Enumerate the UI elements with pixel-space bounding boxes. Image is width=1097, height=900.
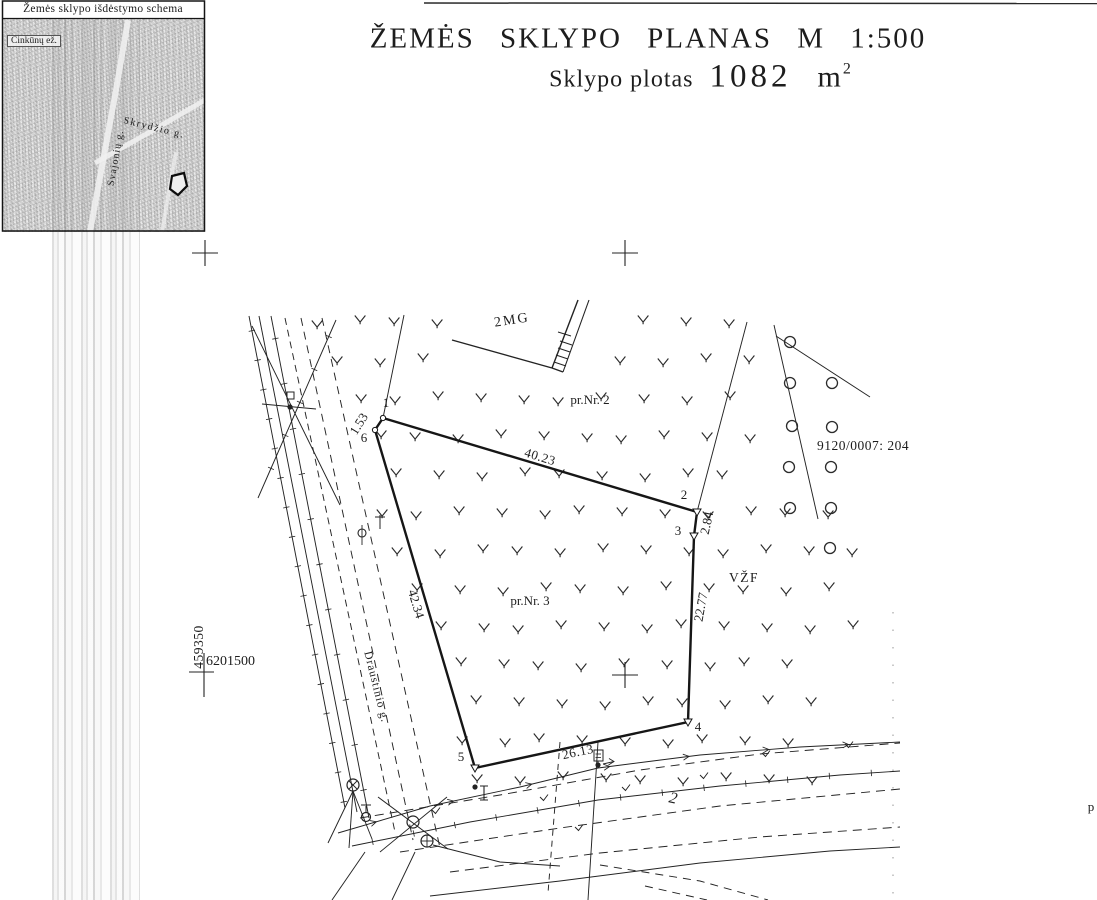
vzf-area-label: VŽF	[729, 570, 759, 586]
vertex-label-4: 4	[695, 719, 702, 735]
meadow-symbols	[312, 316, 859, 787]
vertex-label-1: 1	[383, 395, 390, 411]
grid-coordinate-vertical: 459350	[191, 625, 207, 669]
parcel-north-label: pr.Nr. 2	[570, 392, 609, 408]
grid-coordinate-horizontal: 6201500	[206, 654, 255, 670]
sheet-top-border	[424, 3, 1097, 4]
area-value: 1082	[710, 59, 792, 96]
area-unit: m	[818, 61, 841, 95]
scanned-land-plot-plan: Žemės sklypo išdėstymo schema Cinkūnų ež…	[0, 0, 1097, 900]
inset-lake-label: Cinkūnų ež.	[7, 35, 61, 47]
street-and-fence-lines	[249, 315, 440, 848]
right-edge-cutoff-text: p	[1088, 799, 1095, 815]
inset-title: Žemės sklypo išdėstymo schema	[23, 3, 183, 15]
neighbor-boundary-lines	[697, 322, 870, 519]
area-label: Sklypo plotas	[549, 67, 693, 94]
point-symbols	[287, 392, 853, 847]
plot-area-line: Sklypo plotas 1082 m 2	[549, 59, 851, 96]
cadastral-number-label: 9120/0007: 204	[817, 438, 909, 454]
register-crosses	[189, 240, 638, 697]
parcel-main-label: pr.Nr. 3	[510, 593, 549, 609]
vertex-label-3: 3	[675, 523, 682, 539]
vertex-label-2: 2	[681, 487, 688, 503]
vertex-label-5: 5	[458, 749, 465, 765]
area-exponent: 2	[843, 61, 851, 79]
plan-title: ŽEMĖS SKLYPO PLANAS M 1:500	[370, 23, 927, 56]
